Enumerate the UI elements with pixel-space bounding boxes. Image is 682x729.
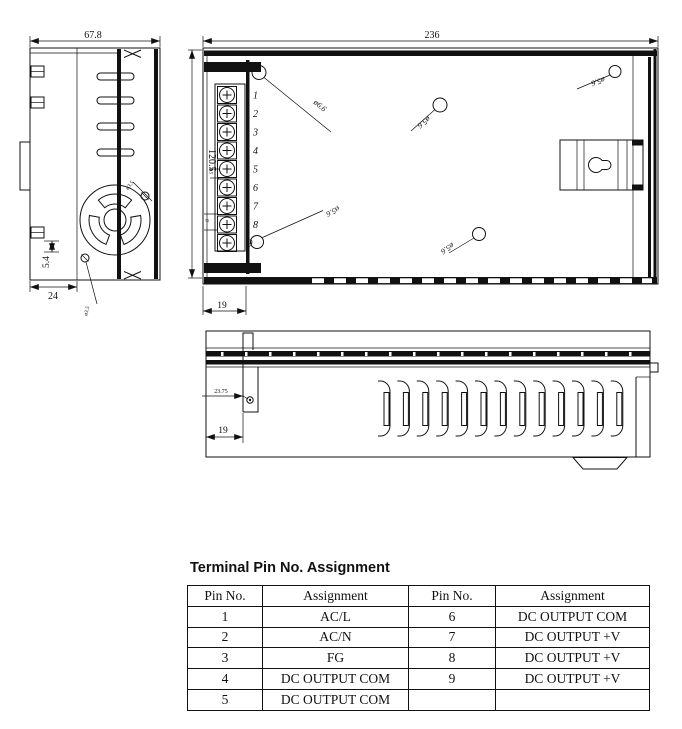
assignment-cell: FG	[263, 648, 409, 669]
corner-screw-top	[124, 50, 141, 58]
terminal-block: 1 2 3 4 5 6 7 8 9 4.5 8	[204, 60, 262, 274]
terminal-screw-crosses	[223, 91, 232, 248]
front-terminal-depth-dim: 19	[218, 426, 228, 436]
fan	[80, 185, 150, 255]
assignment-cell: DC OUTPUT COM	[263, 689, 409, 710]
pin-number-7: 7	[253, 202, 259, 213]
header-pin-no-left: Pin No.	[188, 586, 263, 607]
pin-cell: 2	[188, 627, 263, 648]
table-row: 1 AC/L 6 DC OUTPUT COM	[188, 606, 650, 627]
pin-number-5: 5	[253, 165, 258, 176]
pin-cell: 9	[409, 669, 496, 690]
top-view: 236 120.5	[188, 30, 658, 315]
corner-screw-bottom	[124, 272, 141, 280]
keyhole-bracket	[560, 140, 643, 190]
pin-number-8: 8	[253, 220, 258, 231]
pin-cell	[409, 689, 496, 710]
drawing-canvas: 67.8	[0, 0, 682, 540]
pin-cell: 5	[188, 689, 263, 710]
header-assignment-left: Assignment	[263, 586, 409, 607]
pin-number-9: 9	[248, 239, 253, 250]
pitch-dim-small: 4.5	[208, 168, 215, 175]
hole-label-terminal-side: ø5.6	[325, 204, 342, 219]
pin-cell: 4	[188, 669, 263, 690]
assignment-cell: DC OUTPUT +V	[496, 648, 650, 669]
hole-label-mid: ø5.6	[416, 114, 433, 130]
assignment-cell: DC OUTPUT +V	[496, 627, 650, 648]
pin-cell: 8	[409, 648, 496, 669]
pin-assignment-table: Pin No. Assignment Pin No. Assignment 1 …	[187, 585, 650, 711]
pin-cell: 7	[409, 627, 496, 648]
assignment-cell: AC/L	[263, 606, 409, 627]
assignment-cell: DC OUTPUT COM	[496, 606, 650, 627]
header-pin-no-right: Pin No.	[409, 586, 496, 607]
pin-cell: 3	[188, 648, 263, 669]
mechanical-drawing-page: 67.8	[0, 0, 682, 729]
side-fan-offset-dim: 24	[48, 291, 58, 302]
side-mounting-tabs	[20, 66, 44, 238]
table-row: 2 AC/N 7 DC OUTPUT +V	[188, 627, 650, 648]
pin-number-2: 2	[253, 109, 258, 120]
assignment-cell: DC OUTPUT COM	[263, 669, 409, 690]
pin-number-4: 4	[253, 146, 258, 157]
top-terminal-depth-dim: 19	[217, 301, 227, 311]
assignment-cell	[496, 689, 650, 710]
front-view: 23.75 19	[202, 331, 658, 469]
pin-number-6: 6	[253, 183, 258, 194]
side-bottom-dim: 5.4	[42, 256, 52, 268]
hole-label-top-left: ø6.6	[311, 97, 328, 114]
side-vent-slots	[97, 73, 134, 156]
foot-tab	[573, 458, 627, 470]
side-view: 67.8	[20, 30, 160, 317]
pitch-dim-end: 8	[204, 219, 210, 222]
pin-number-1: 1	[253, 91, 258, 102]
table-row: 3 FG 8 DC OUTPUT +V	[188, 648, 650, 669]
pin-cell: 1	[188, 606, 263, 627]
hole-mid	[411, 98, 447, 131]
fan-screw-hole-bottom	[81, 254, 97, 304]
hole-label-bottom-right: ø5.6	[439, 240, 456, 256]
table-row: 5 DC OUTPUT COM	[188, 689, 650, 710]
louvers	[378, 381, 623, 436]
front-hole-offset-dim: 23.75	[214, 389, 228, 395]
side-width-dim: 67.8	[84, 30, 102, 41]
pin-number-3: 3	[252, 128, 258, 139]
assignment-cell: DC OUTPUT +V	[496, 669, 650, 690]
hole-terminal-side	[251, 211, 324, 249]
fan-hole-label-bottom: ø3.5	[83, 305, 92, 317]
header-assignment-right: Assignment	[496, 586, 650, 607]
table-row: 4 DC OUTPUT COM 9 DC OUTPUT +V	[188, 669, 650, 690]
terminal-cover	[243, 333, 258, 412]
pin-cell: 6	[409, 606, 496, 627]
top-length-dim: 236	[425, 30, 440, 41]
assignment-cell: AC/N	[263, 627, 409, 648]
keyhole-slot	[589, 158, 612, 173]
table-header-row: Pin No. Assignment Pin No. Assignment	[188, 586, 650, 607]
pin-table-title: Terminal Pin No. Assignment	[190, 560, 390, 576]
hole-label-top-right: ø5.6	[590, 75, 607, 88]
